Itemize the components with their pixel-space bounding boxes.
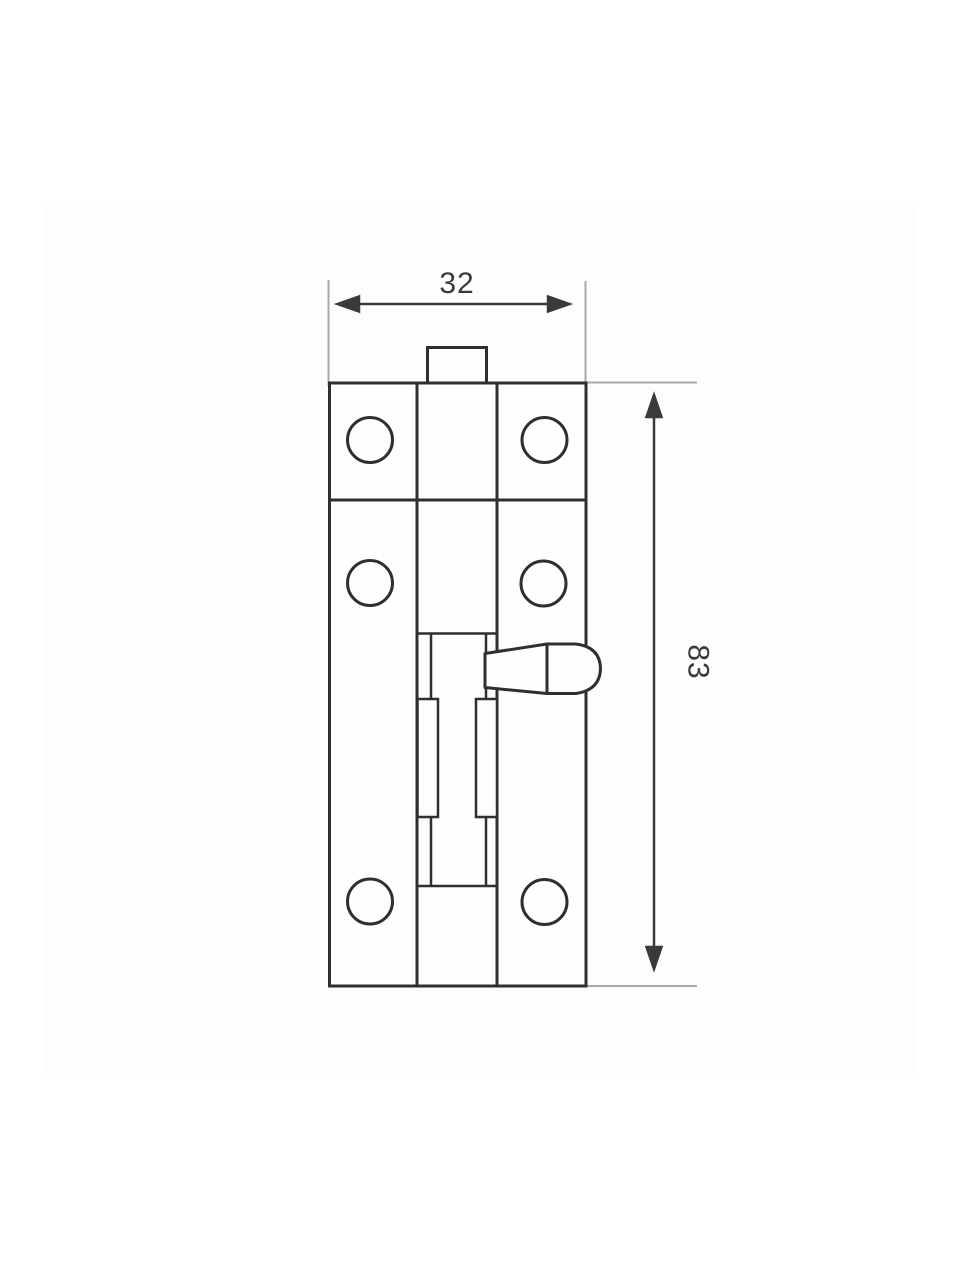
latch-drawing [330, 348, 601, 987]
product-drawing-page: 32 83 [0, 0, 960, 1280]
width-dimension-label: 32 [439, 267, 474, 300]
guide-rail-right [476, 699, 497, 817]
guide-rail-left [418, 699, 439, 817]
knob-cap [547, 644, 601, 694]
knob-neck [485, 644, 547, 694]
bolt-tip [428, 348, 487, 384]
height-dimension-label: 83 [682, 644, 715, 679]
technical-drawing: 32 83 [0, 0, 960, 1280]
